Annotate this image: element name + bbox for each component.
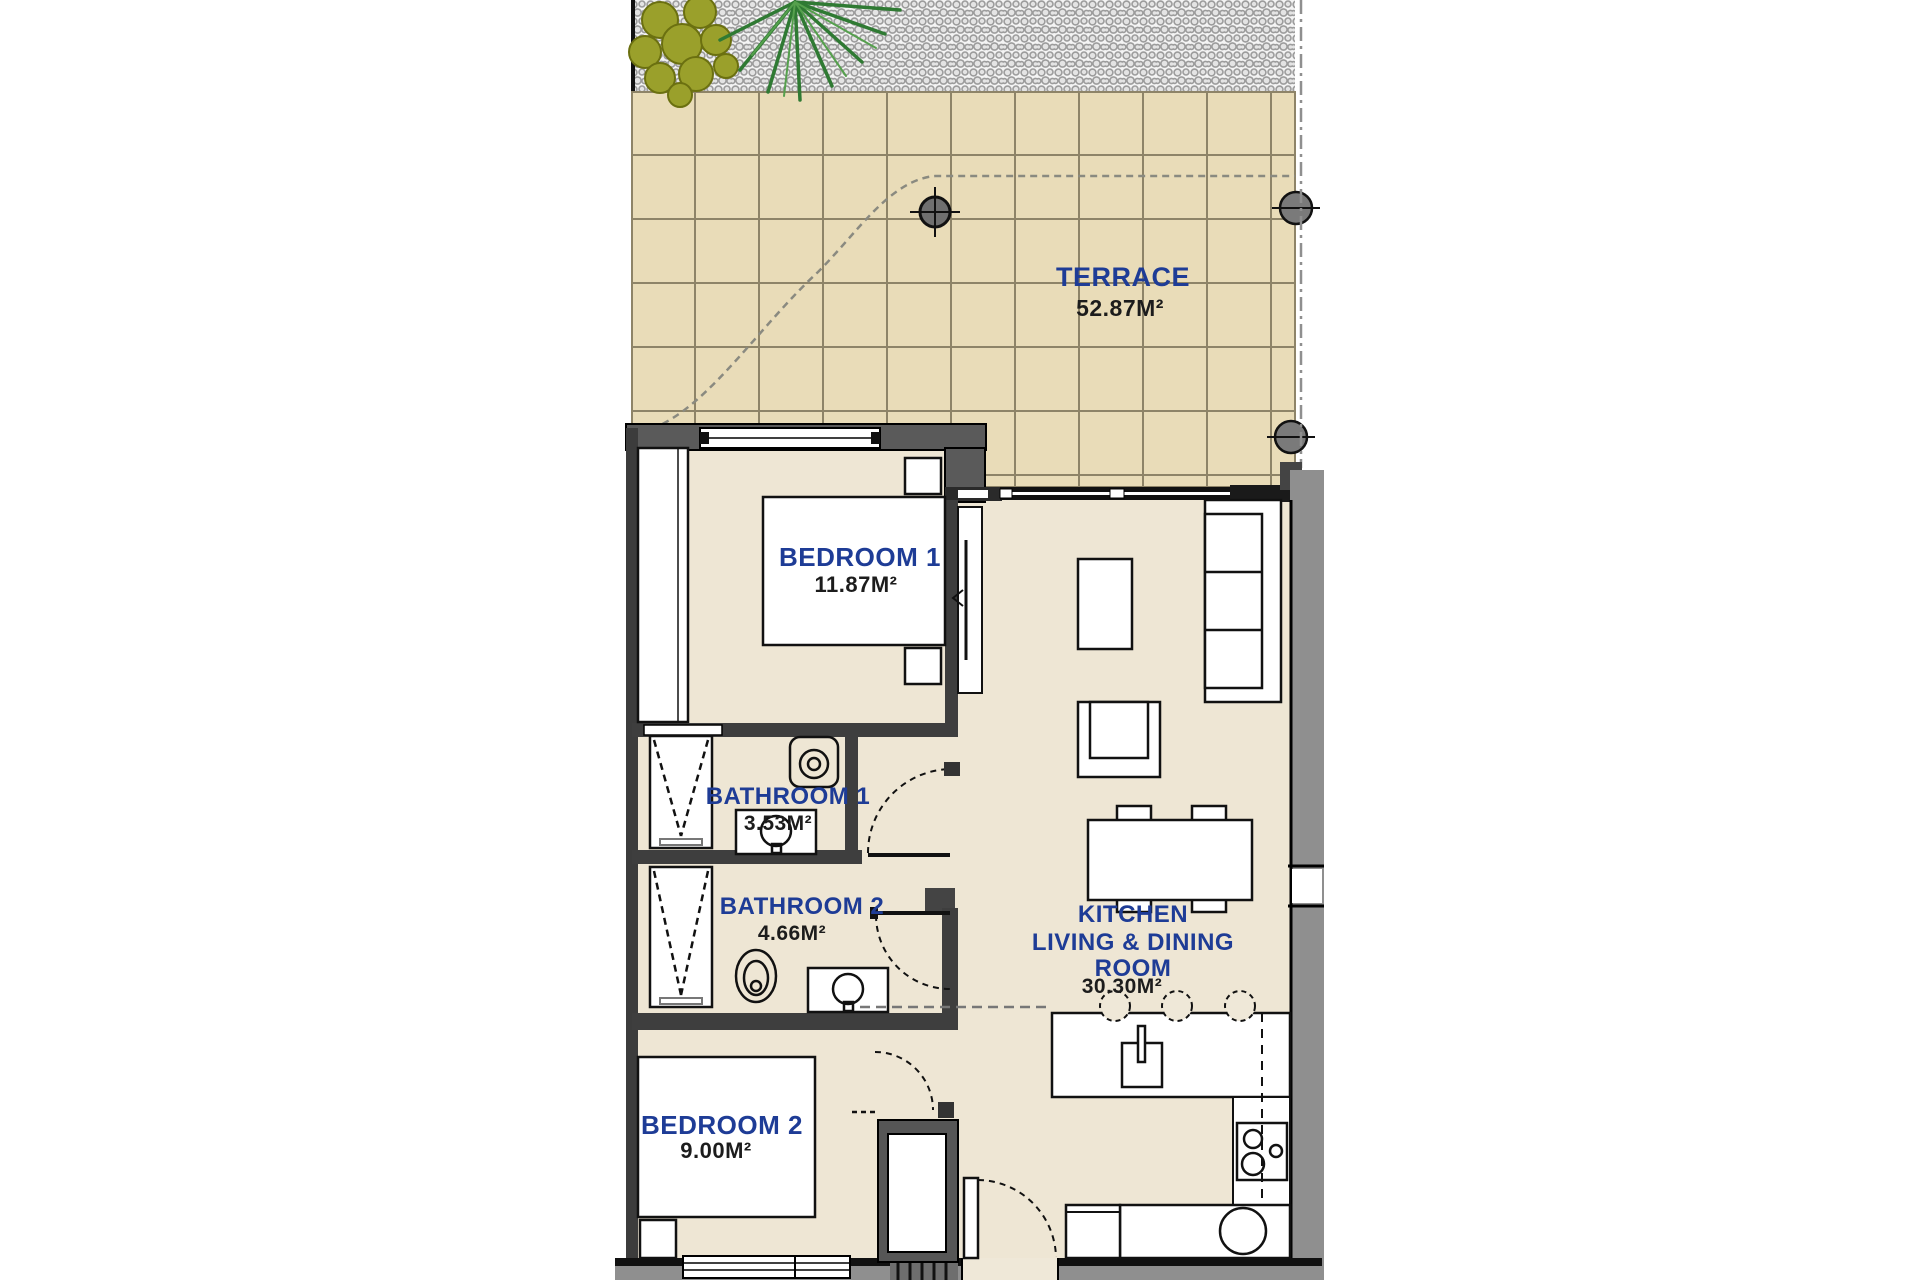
bar-stool-icon [1225, 991, 1255, 1021]
wall-bathroom2-right [942, 908, 958, 1013]
bedroom2-window [683, 1256, 850, 1278]
bathroom2-area: 4.66M² [758, 922, 826, 945]
floor-plan-page: TERRACE 52.87M² BEDROOM 1 11.87M² BATHRO… [0, 0, 1920, 1280]
toilet-icon [790, 737, 838, 787]
shower-icon [650, 867, 712, 1007]
side-table-icon [1078, 559, 1132, 649]
wall-bathroom2-bedroom2 [632, 1013, 958, 1030]
closet-column [878, 1120, 958, 1262]
tv-unit-icon [953, 507, 982, 693]
wall-bedroom1-living [945, 500, 958, 723]
entrance-threshold [962, 1258, 1058, 1280]
kitchen-area: 30.30M² [1082, 975, 1163, 998]
kitchen-label-line2: LIVING & DINING [1032, 929, 1234, 956]
terrace-area: 52.87M² [1076, 295, 1164, 321]
bedroom2-area: 9.00M² [680, 1138, 751, 1163]
bathroom1-area: 3.53M² [744, 812, 812, 835]
kitchen-label-line1: KITCHEN [1078, 901, 1188, 928]
sliding-door-bedroom1 [644, 725, 722, 735]
armchair-icon [1078, 702, 1160, 777]
nightstand-icon [905, 458, 941, 494]
oven-icon [1066, 1205, 1120, 1258]
entry-grille [890, 1262, 958, 1280]
nightstand-icon [905, 648, 941, 684]
bedroom2-label: BEDROOM 2 [641, 1110, 803, 1140]
bar-stool-icon [1162, 991, 1192, 1021]
bedroom1-window [700, 428, 880, 448]
bedroom1-label: BEDROOM 1 [779, 542, 941, 572]
floor-plan: TERRACE 52.87M² BEDROOM 1 11.87M² BATHRO… [0, 0, 1920, 1280]
kitchen-counter-bottom [1120, 1205, 1290, 1258]
bathroom1-label: BATHROOM 1 [706, 783, 871, 810]
dining-table-icon [1088, 806, 1252, 912]
living-terrace-window [1000, 487, 1230, 500]
sofa-icon [1205, 500, 1281, 702]
bedroom1-area: 11.87M² [815, 572, 898, 597]
nightstand-icon [640, 1220, 676, 1258]
washbasin-icon [808, 968, 888, 1012]
bathroom2-label: BATHROOM 2 [720, 893, 885, 920]
wardrobe-icon [638, 448, 688, 722]
dining-side-window [1288, 866, 1324, 906]
kitchen-peninsula [1052, 1013, 1290, 1097]
terrace-label: TERRACE [1056, 262, 1190, 292]
gravel-area [632, 0, 1295, 92]
wall-notch [958, 490, 988, 498]
shower-icon [650, 736, 712, 848]
